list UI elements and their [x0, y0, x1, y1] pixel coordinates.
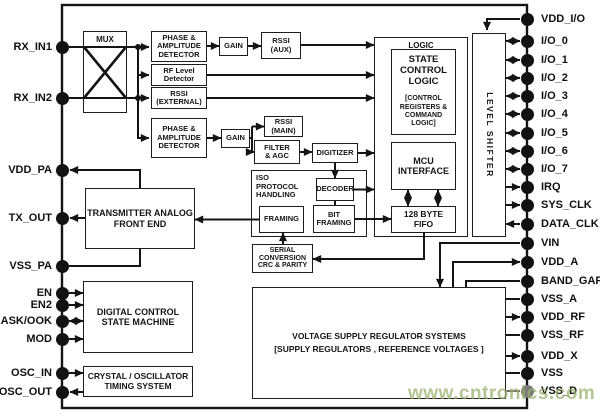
- filter-agc-block: FILTER & AGC: [254, 140, 300, 164]
- state-control-logic-sublabel: [CONTROL REGISTERS & COMMAND LOGIC]: [400, 95, 447, 129]
- pin-ask-ook-label: ASK/OOK: [1, 314, 52, 328]
- pin-vdd-pa: [56, 164, 69, 177]
- digitizer-block: DIGITIZER: [312, 143, 358, 163]
- pin-io-5: [521, 127, 534, 140]
- pin-vss-pa-label: VSS_PA: [9, 259, 52, 273]
- pin-vss-label: VSS: [541, 366, 563, 380]
- pin-io-6-label: I/O_6: [541, 144, 568, 158]
- pin-io-1-label: I/O_1: [541, 53, 568, 67]
- iso-protocol-handling-label: ISO PROTOCOL HANDLING: [256, 174, 318, 200]
- pin-io-5-label: I/O_5: [541, 126, 568, 140]
- pin-osc-out-label: OSC_OUT: [0, 385, 52, 399]
- pin-sys-clk: [521, 199, 534, 212]
- decoder-block: DECODER: [316, 178, 354, 201]
- pin-tx-out: [56, 212, 69, 225]
- pin-mod: [56, 333, 69, 346]
- pin-io-3: [521, 90, 534, 103]
- mcu-interface-block: MCU INTERFACE: [391, 142, 456, 190]
- rssi-aux-block: RSSI (AUX): [261, 32, 301, 59]
- rssi-main-block: RSSI (MAIN): [264, 116, 303, 137]
- gain-2-block: GAIN: [221, 129, 250, 148]
- pin-vdd-a-label: VDD_A: [541, 255, 578, 269]
- pin-en2-label: EN2: [31, 298, 52, 312]
- pin-vdd-x-label: VDD_X: [541, 349, 578, 363]
- watermark: www.cntronics.com: [408, 383, 595, 405]
- pin-vss: [521, 367, 534, 380]
- pin-vdd-a: [521, 256, 534, 269]
- pin-vss-rf: [521, 329, 534, 342]
- level-shifter-label: LEVEL SHIFTER: [474, 33, 504, 237]
- phase-amplitude-detector-2-block: PHASE & AMPLITUDE DETECTOR: [151, 118, 207, 158]
- pin-io-0: [521, 35, 534, 48]
- pin-mod-label: MOD: [26, 332, 52, 346]
- pin-vss-a-label: VSS_A: [541, 292, 577, 306]
- block-diagram: ISO PROTOCOL HANDLING LOGIC LEVEL SHIFTE…: [0, 0, 600, 416]
- pin-band-gap-label: BAND_GAP: [541, 274, 600, 288]
- pin-vss-a: [521, 293, 534, 306]
- transmitter-analog-front-end-block: TRANSMITTER ANALOG FRONT END: [85, 188, 195, 249]
- state-control-logic-label: STATE CONTROL LOGIC: [400, 55, 447, 87]
- pin-tx-out-label: TX_OUT: [9, 211, 52, 225]
- pin-io-4: [521, 108, 534, 121]
- serial-conversion-block: SERIAL CONVERSION CRC & PARITY: [252, 244, 313, 273]
- pin-osc-in-label: OSC_IN: [11, 366, 52, 380]
- pin-osc-in: [56, 367, 69, 380]
- pin-sys-clk-label: SYS_CLK: [541, 198, 592, 212]
- pin-vss-rf-label: VSS_RF: [541, 328, 584, 342]
- pin-vdd-io-label: VDD_I/O: [541, 12, 585, 26]
- pin-io-6: [521, 145, 534, 158]
- pin-vdd-pa-label: VDD_PA: [8, 163, 52, 177]
- rssi-external-block: RSSI (EXTERNAL): [151, 87, 207, 109]
- pin-vdd-io: [521, 13, 534, 26]
- mux-block: MUX: [83, 31, 127, 113]
- pin-vin-label: VIN: [541, 236, 559, 250]
- pin-rx-in1: [56, 41, 69, 54]
- state-control-logic-block: STATE CONTROL LOGIC [CONTROL REGISTERS &…: [391, 49, 456, 135]
- pin-vdd-rf: [521, 311, 534, 324]
- pin-vdd-rf-label: VDD_RF: [541, 310, 585, 324]
- pin-ask-ook: [56, 315, 69, 328]
- framing-block: FRAMING: [259, 206, 304, 233]
- pin-irq: [521, 181, 534, 194]
- pin-en2: [56, 299, 69, 312]
- pin-vss-pa: [56, 260, 69, 273]
- pin-io-1: [521, 54, 534, 67]
- crystal-oscillator-timing-block: CRYSTAL / OSCILLATOR TIMING SYSTEM: [83, 366, 193, 397]
- pin-vin: [521, 237, 534, 250]
- pin-io-7: [521, 163, 534, 176]
- gain-1-block: GAIN: [219, 37, 248, 56]
- pin-irq-label: IRQ: [541, 180, 561, 194]
- pin-en: [56, 287, 69, 300]
- pin-rx-in1-label: RX_IN1: [13, 40, 52, 54]
- fifo-block: 128 BYTE FIFO: [391, 206, 456, 233]
- pin-io-3-label: I/O_3: [541, 89, 568, 103]
- pin-vdd-x: [521, 350, 534, 363]
- pin-osc-out: [56, 386, 69, 399]
- pin-rx-in2-label: RX_IN2: [13, 91, 52, 105]
- digital-control-state-machine-block: DIGITAL CONTROL STATE MACHINE: [83, 281, 193, 353]
- pin-band-gap: [521, 275, 534, 288]
- bit-framing-block: BIT FRAMING: [313, 205, 355, 233]
- pin-io-2-label: I/O_2: [541, 71, 568, 85]
- phase-amplitude-detector-1-block: PHASE & AMPLITUDE DETECTOR: [151, 31, 207, 62]
- pin-io-7-label: I/O_7: [541, 162, 568, 176]
- pin-io-0-label: I/O_0: [541, 34, 568, 48]
- pin-data-clk-label: DATA_CLK: [541, 217, 599, 231]
- pin-io-4-label: I/O_4: [541, 107, 568, 121]
- pin-data-clk: [521, 218, 534, 231]
- level-shifter-block: LEVEL SHIFTER: [472, 33, 506, 237]
- pin-rx-in2: [56, 92, 69, 105]
- pin-io-2: [521, 72, 534, 85]
- rf-level-detector-block: RF Level Detector: [151, 64, 207, 86]
